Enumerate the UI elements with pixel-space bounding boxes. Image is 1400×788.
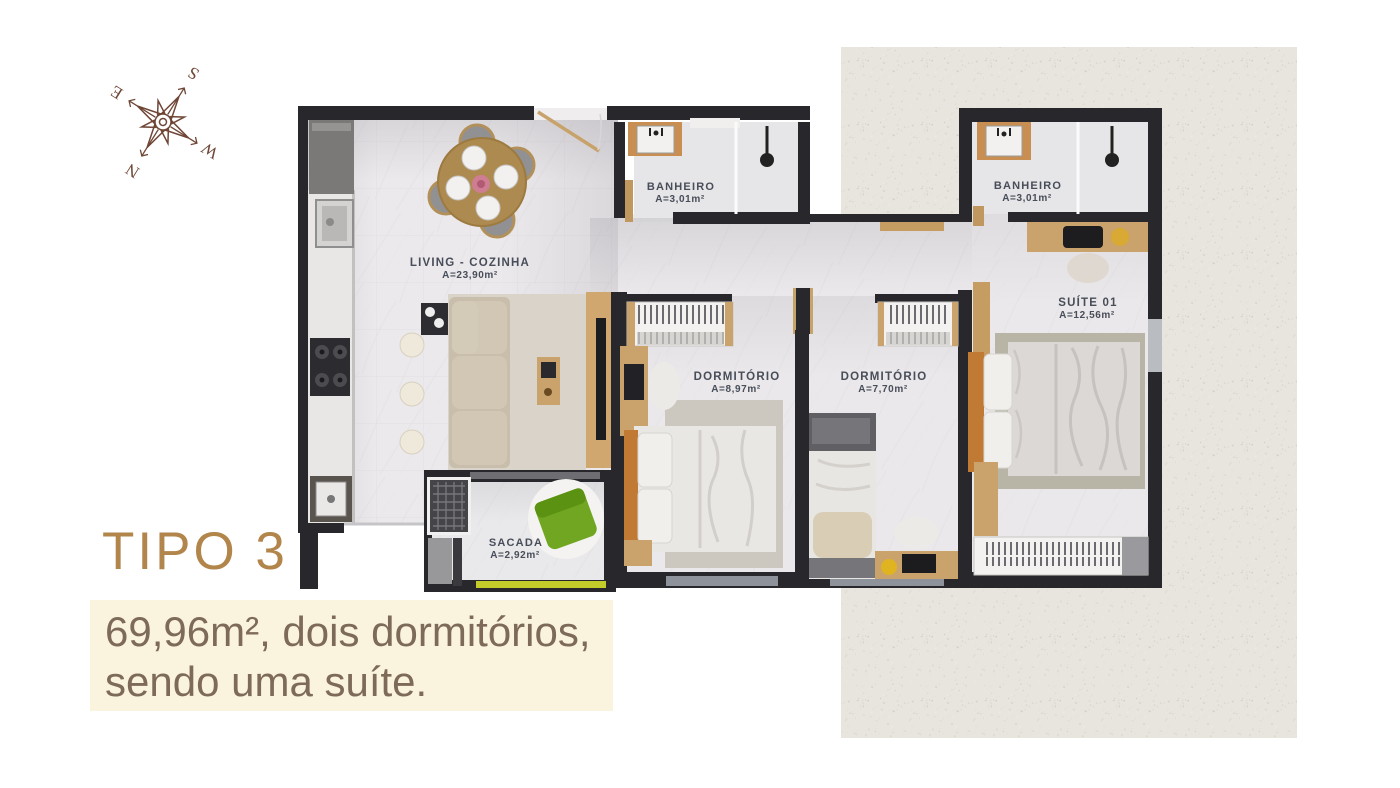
svg-text:E: E: [107, 82, 126, 104]
svg-text:BANHEIRO: BANHEIRO: [647, 181, 715, 193]
svg-text:LIVING - COZINHA: LIVING - COZINHA: [410, 257, 530, 269]
svg-text:A=8,97m²: A=8,97m²: [711, 384, 761, 395]
svg-text:N: N: [122, 159, 142, 182]
svg-text:A=12,56m²: A=12,56m²: [1059, 310, 1115, 321]
svg-text:SACADA: SACADA: [489, 537, 543, 549]
svg-text:S: S: [184, 63, 202, 84]
svg-text:A=3,01m²: A=3,01m²: [655, 194, 705, 205]
svg-text:BANHEIRO: BANHEIRO: [994, 180, 1062, 192]
svg-text:W: W: [197, 138, 221, 163]
svg-text:A=7,70m²: A=7,70m²: [858, 384, 908, 395]
svg-text:A=3,01m²: A=3,01m²: [1002, 193, 1052, 204]
svg-text:A=2,92m²: A=2,92m²: [490, 550, 540, 561]
svg-text:DORMITÓRIO: DORMITÓRIO: [841, 370, 928, 383]
svg-text:A=23,90m²: A=23,90m²: [442, 270, 498, 281]
svg-text:SUÍTE 01: SUÍTE 01: [1058, 296, 1117, 309]
svg-text:DORMITÓRIO: DORMITÓRIO: [694, 370, 781, 383]
